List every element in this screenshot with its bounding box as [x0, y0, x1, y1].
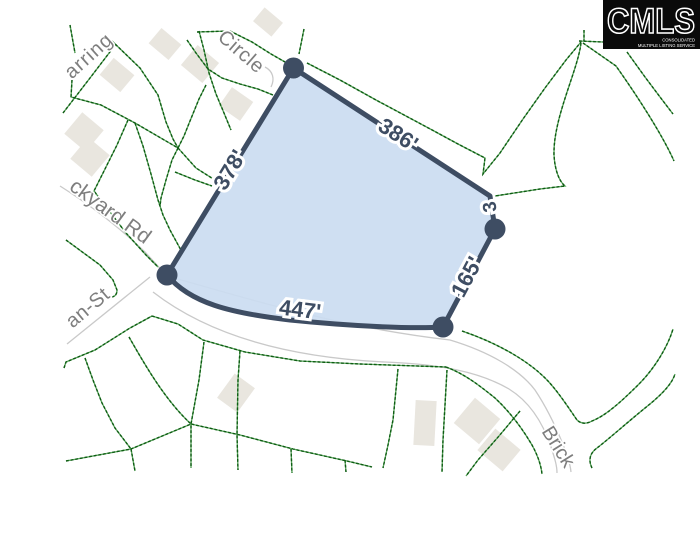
svg-text:447': 447'	[278, 295, 323, 325]
svg-text:CONSOLIDATED: CONSOLIDATED	[662, 38, 695, 43]
svg-text:MULTIPLE LISTING SERVICE: MULTIPLE LISTING SERVICE	[638, 43, 695, 48]
svg-text:CMLS: CMLS	[607, 2, 695, 41]
